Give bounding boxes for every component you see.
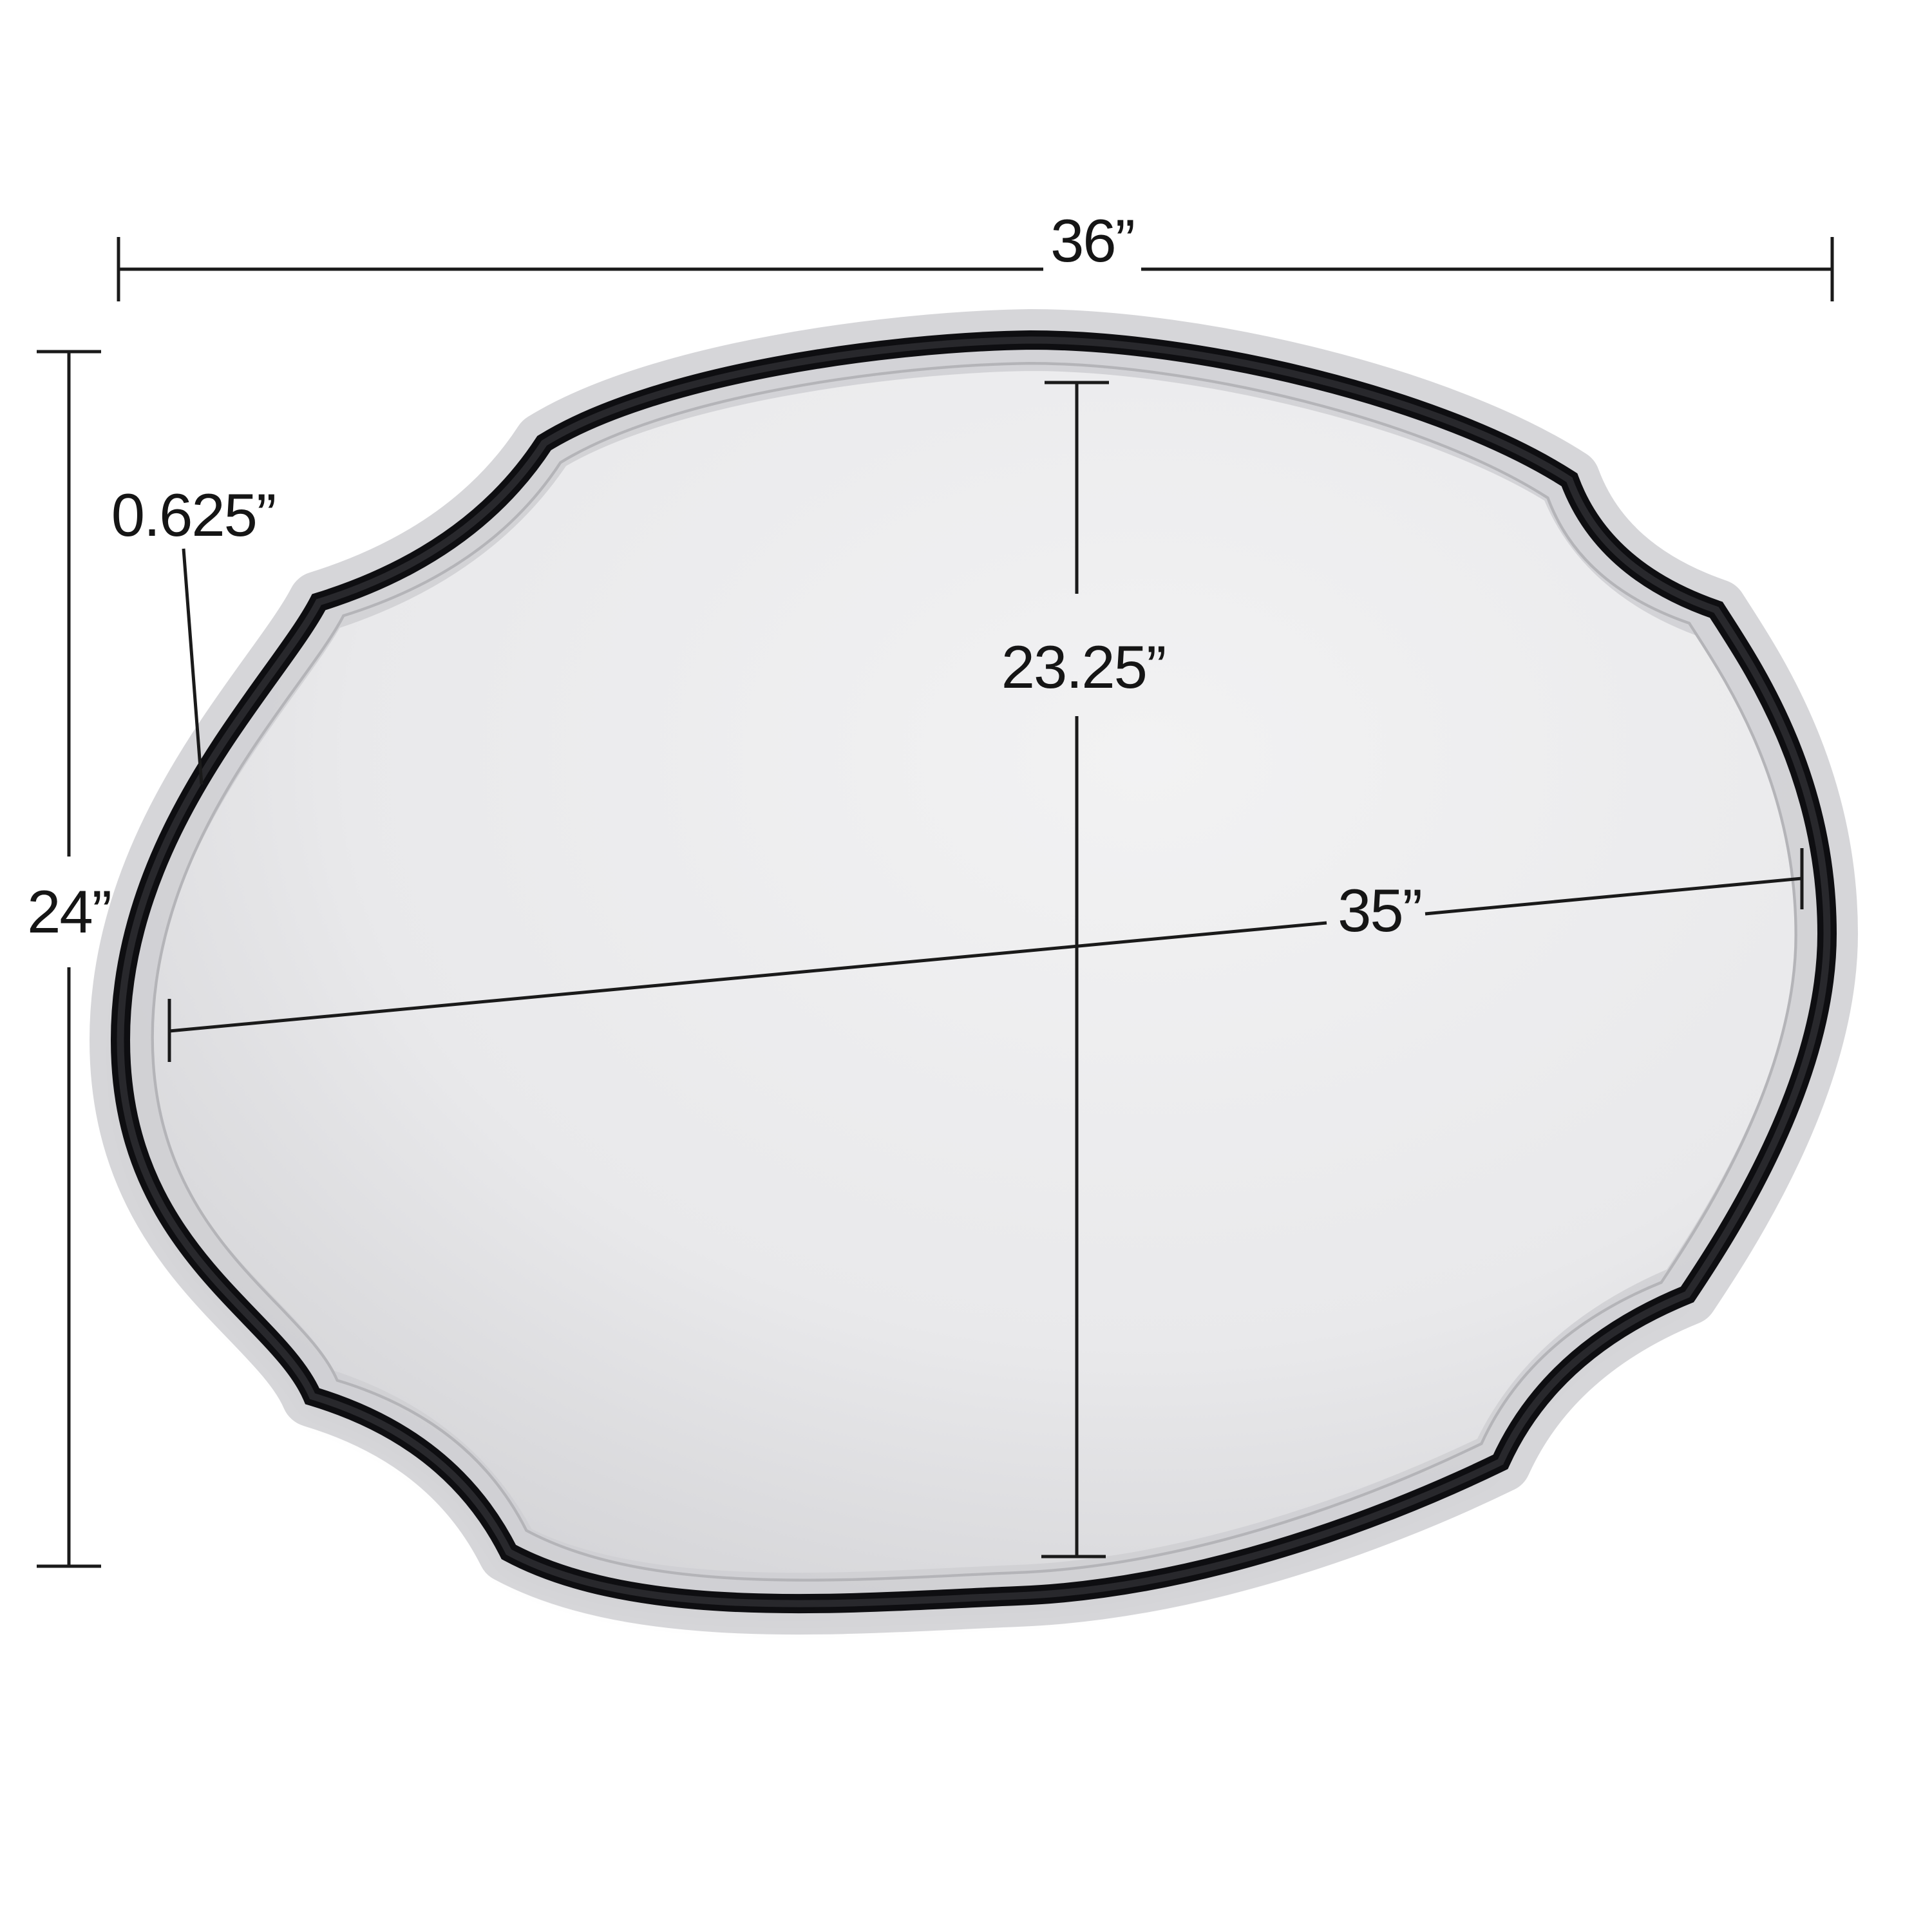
overall-width-label: 36” (1050, 211, 1134, 271)
overall-width-dimension (118, 237, 1832, 301)
frame-thickness-label: 0.625” (111, 485, 276, 545)
glass-width-label: 35” (1338, 880, 1421, 941)
mirror-graphic (114, 340, 1827, 1620)
dimension-diagram: 36” 24” 0.625” 23.25” 35” (0, 0, 1932, 1932)
glass-height-label: 23.25” (1001, 637, 1166, 697)
overall-height-dimension (37, 352, 101, 1566)
overall-height-label: 24” (27, 882, 111, 942)
mirror-diagram-canvas (0, 0, 1932, 1932)
